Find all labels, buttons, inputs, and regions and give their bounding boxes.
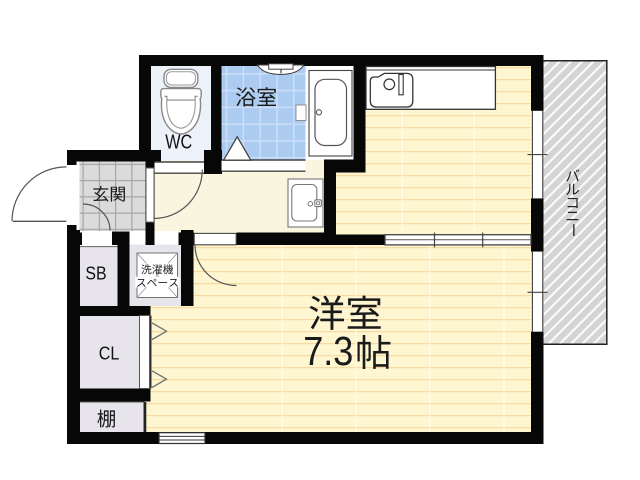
svg-text:7.3: 7.3: [303, 328, 353, 374]
svg-text:CL: CL: [99, 343, 120, 363]
svg-text:SB: SB: [85, 264, 106, 284]
svg-text:WC: WC: [165, 130, 192, 153]
